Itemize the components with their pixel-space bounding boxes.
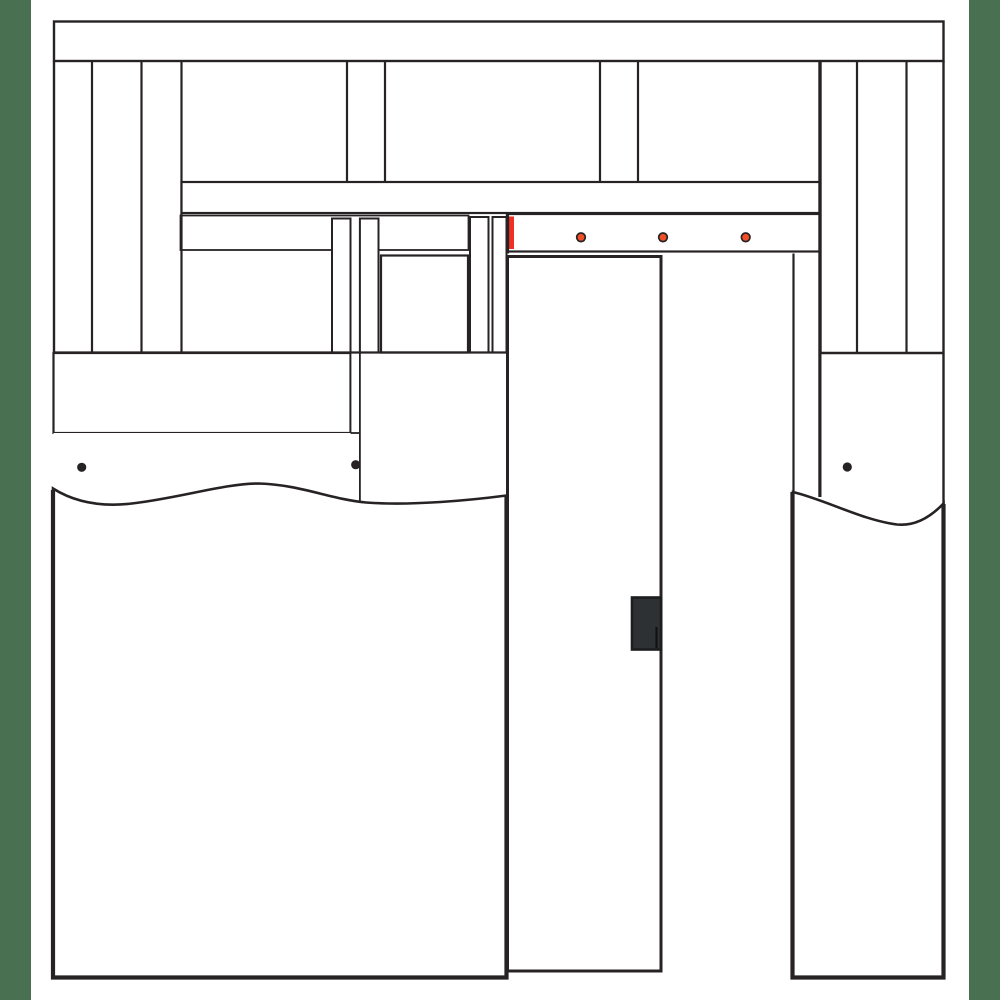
top-plate (54, 22, 944, 62)
page-edge-right (969, 0, 1000, 1000)
drywall-lower-left (53, 484, 507, 978)
page-edge-left (0, 0, 31, 1000)
split-stud (493, 217, 507, 353)
track-red-sliver (509, 217, 514, 250)
track-screw (577, 233, 586, 242)
split-stud (332, 219, 351, 353)
drywall-nail (351, 460, 360, 469)
illustration-page (0, 0, 1000, 1000)
door-pull (632, 598, 661, 650)
drywall-nail (77, 463, 86, 472)
drywall-nail (843, 462, 852, 471)
pocket-door-framing-diagram (0, 0, 1000, 1000)
header-beam (182, 182, 821, 213)
track-screw (741, 233, 750, 242)
split-stud (470, 217, 489, 353)
track-screw (659, 233, 668, 242)
drywall-band-left (54, 353, 351, 433)
drywall-upper-right (822, 353, 944, 513)
drywall-lower-right (793, 492, 944, 978)
split-stud (360, 219, 379, 353)
pocket-gap (351, 219, 360, 434)
